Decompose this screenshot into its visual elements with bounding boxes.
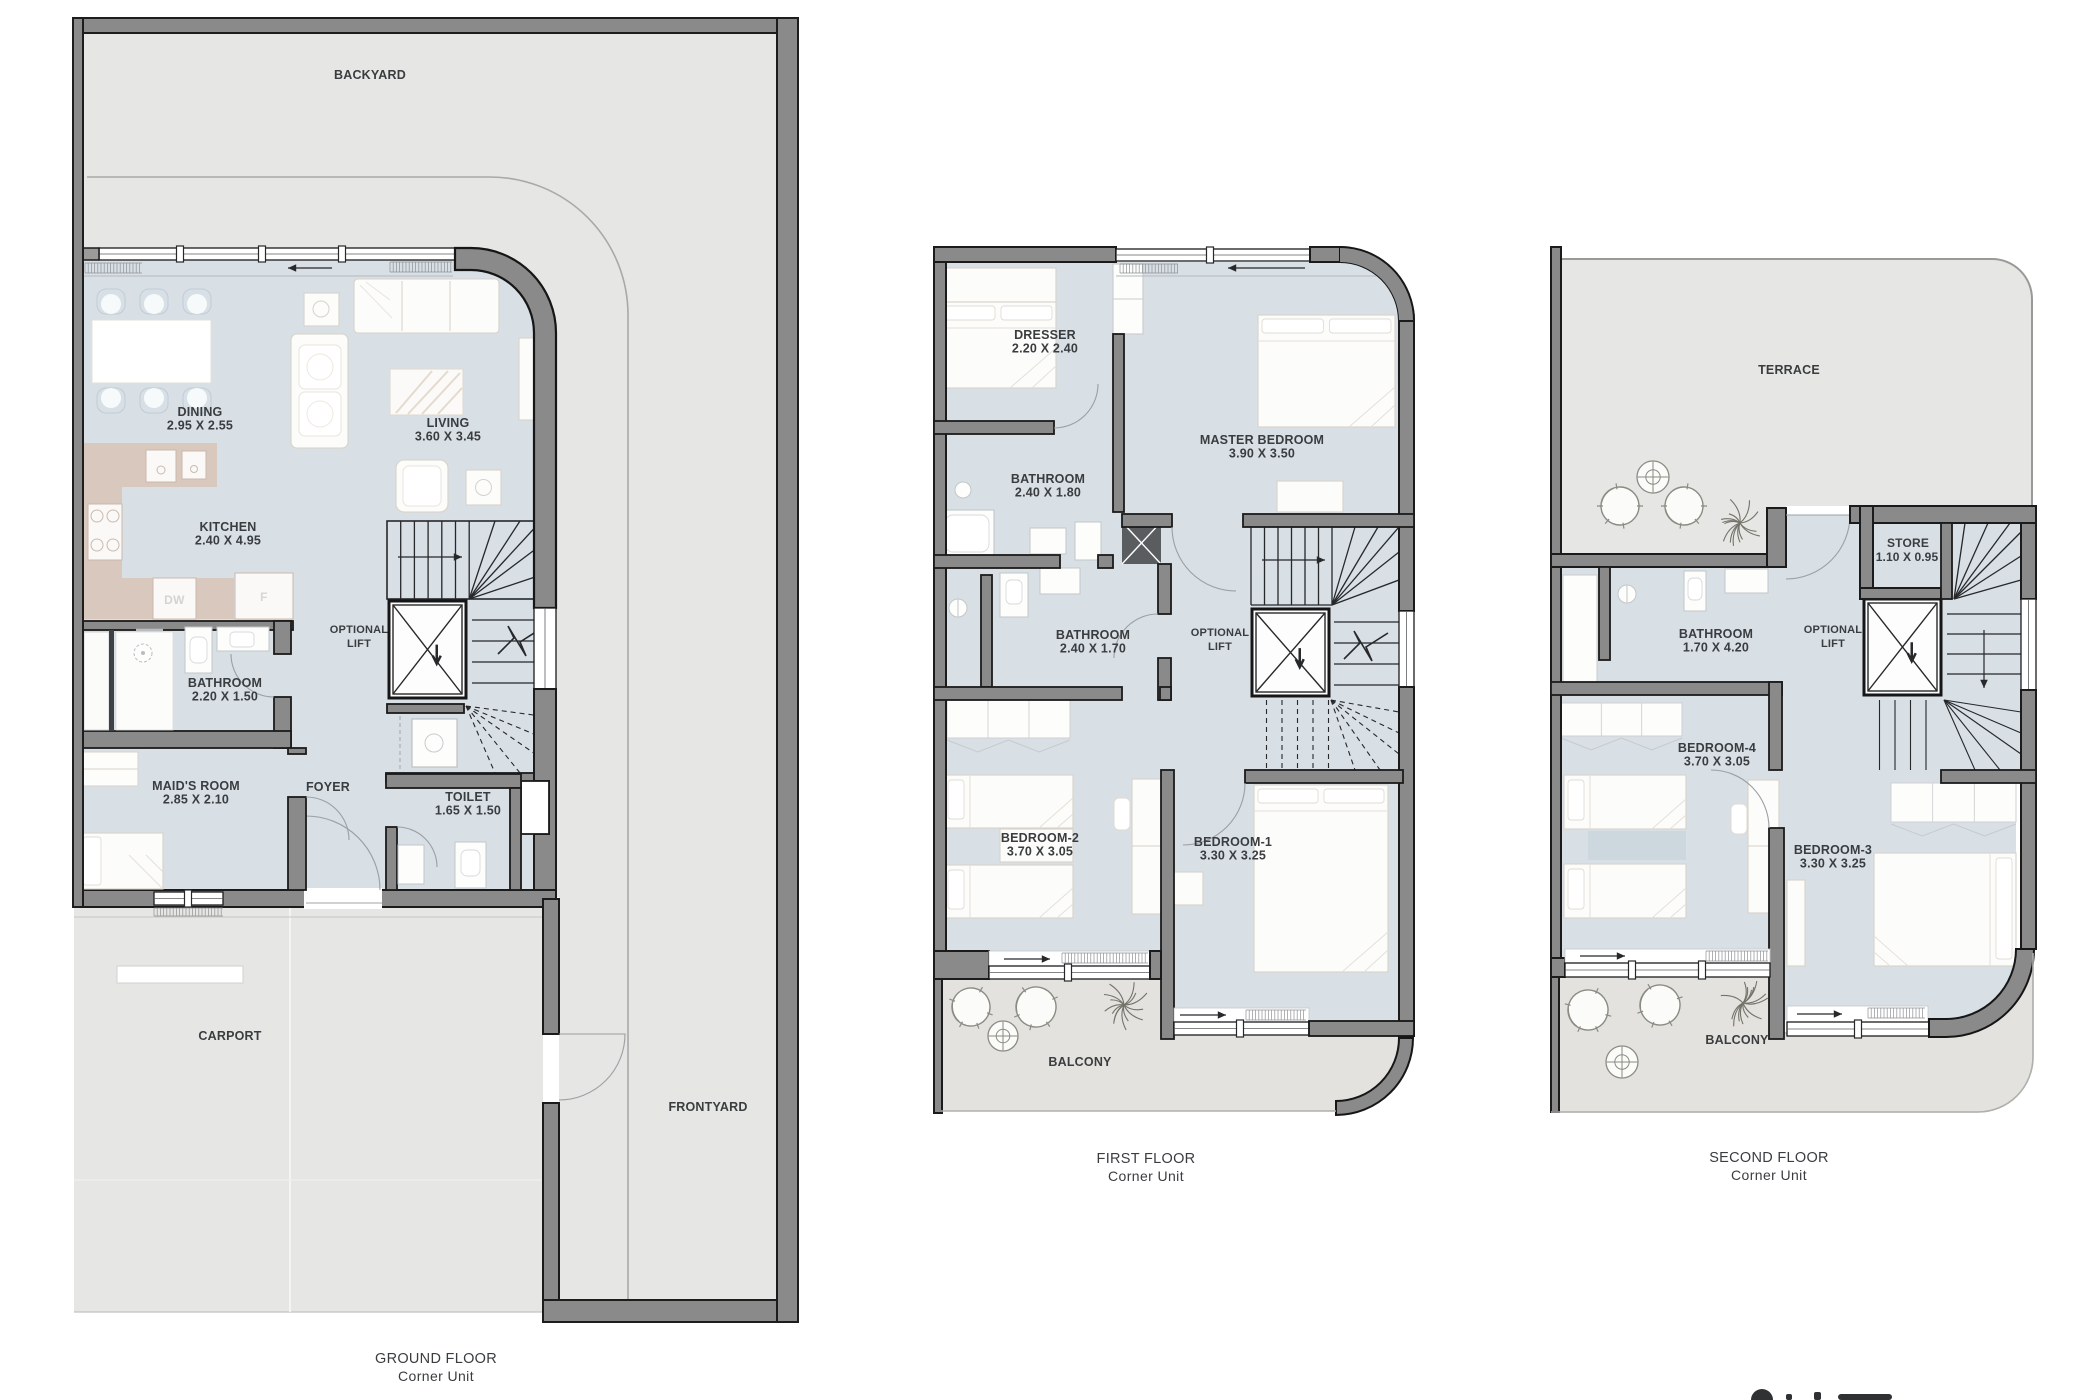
- svg-text:OPTIONAL: OPTIONAL: [330, 624, 389, 636]
- svg-text:STORE: STORE: [1887, 536, 1929, 550]
- svg-text:2.40 X 1.70: 2.40 X 1.70: [1060, 642, 1126, 656]
- svg-text:CARPORT: CARPORT: [198, 1029, 261, 1043]
- svg-text:OPTIONAL: OPTIONAL: [1191, 627, 1250, 639]
- svg-text:LIFT: LIFT: [347, 638, 371, 650]
- svg-text:DW: DW: [164, 593, 185, 607]
- svg-text:BEDROOM-1: BEDROOM-1: [1194, 835, 1272, 849]
- svg-text:KITCHEN: KITCHEN: [200, 520, 257, 534]
- svg-text:2.95 X 2.55: 2.95 X 2.55: [167, 419, 233, 433]
- svg-text:BATHROOM: BATHROOM: [188, 676, 262, 690]
- svg-text:1.10 X 0.95: 1.10 X 0.95: [1876, 550, 1939, 564]
- svg-text:2.40 X 4.95: 2.40 X 4.95: [195, 534, 261, 548]
- svg-text:BATHROOM: BATHROOM: [1011, 472, 1085, 486]
- svg-text:2.20 X 2.40: 2.20 X 2.40: [1012, 342, 1078, 356]
- svg-text:3.30 X 3.25: 3.30 X 3.25: [1800, 857, 1866, 871]
- svg-text:Corner Unit: Corner Unit: [1108, 1168, 1184, 1184]
- svg-text:LIFT: LIFT: [1821, 638, 1845, 650]
- svg-text:1.70 X 4.20: 1.70 X 4.20: [1683, 641, 1749, 655]
- svg-text:BEDROOM-2: BEDROOM-2: [1001, 831, 1079, 845]
- svg-text:DINING: DINING: [178, 405, 223, 419]
- svg-text:BEDROOM-4: BEDROOM-4: [1678, 741, 1756, 755]
- svg-text:FRONTYARD: FRONTYARD: [668, 1100, 747, 1114]
- svg-text:3.90 X 3.50: 3.90 X 3.50: [1229, 447, 1295, 461]
- svg-text:DRESSER: DRESSER: [1014, 328, 1076, 342]
- svg-text:BALCONY: BALCONY: [1705, 1033, 1769, 1047]
- svg-text:FOYER: FOYER: [306, 780, 350, 794]
- svg-text:LIFT: LIFT: [1208, 641, 1232, 653]
- svg-text:SECOND FLOOR: SECOND FLOOR: [1709, 1150, 1829, 1166]
- svg-text:BEDROOM-3: BEDROOM-3: [1794, 843, 1872, 857]
- svg-text:BATHROOM: BATHROOM: [1679, 627, 1753, 641]
- svg-text:Corner Unit: Corner Unit: [1731, 1167, 1807, 1183]
- svg-text:TERRACE: TERRACE: [1758, 363, 1820, 377]
- svg-text:3.30 X 3.25: 3.30 X 3.25: [1200, 849, 1266, 863]
- svg-text:2.20 X 1.50: 2.20 X 1.50: [192, 690, 258, 704]
- svg-text:TOILET: TOILET: [445, 790, 491, 804]
- svg-text:1.65 X 1.50: 1.65 X 1.50: [435, 804, 501, 818]
- svg-text:MASTER BEDROOM: MASTER BEDROOM: [1200, 433, 1324, 447]
- svg-text:BALCONY: BALCONY: [1048, 1055, 1112, 1069]
- svg-text:GROUND FLOOR: GROUND FLOOR: [375, 1351, 497, 1367]
- svg-text:3.70 X 3.05: 3.70 X 3.05: [1684, 755, 1750, 769]
- svg-text:2.85 X 2.10: 2.85 X 2.10: [163, 793, 229, 807]
- svg-text:3.60 X 3.45: 3.60 X 3.45: [415, 430, 481, 444]
- svg-text:OPTIONAL: OPTIONAL: [1804, 624, 1863, 636]
- svg-text:BACKYARD: BACKYARD: [334, 68, 406, 82]
- svg-text:3.70 X 3.05: 3.70 X 3.05: [1007, 845, 1073, 859]
- svg-text:FIRST FLOOR: FIRST FLOOR: [1097, 1151, 1196, 1167]
- svg-text:MAID'S ROOM: MAID'S ROOM: [152, 779, 240, 793]
- svg-text:LIVING: LIVING: [427, 416, 470, 430]
- svg-text:Corner Unit: Corner Unit: [398, 1368, 474, 1384]
- svg-text:F: F: [260, 590, 268, 604]
- svg-text:2.40 X 1.80: 2.40 X 1.80: [1015, 486, 1081, 500]
- svg-text:BATHROOM: BATHROOM: [1056, 628, 1130, 642]
